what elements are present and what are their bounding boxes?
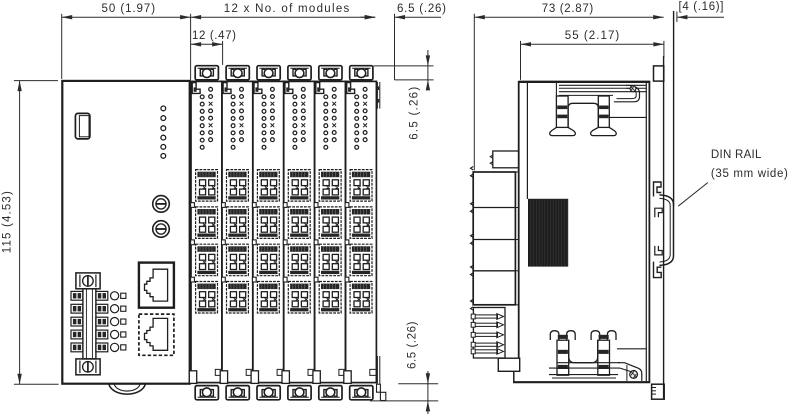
svg-text:[4 (.16)]: [4 (.16)] — [679, 1, 724, 13]
svg-text:50 (1.97): 50 (1.97) — [102, 3, 156, 15]
svg-text:6.5 (.26): 6.5 (.26) — [397, 3, 446, 15]
svg-text:115 (4.53): 115 (4.53) — [2, 191, 14, 253]
svg-text:55 (2.17): 55 (2.17) — [565, 30, 620, 42]
svg-text:6.5 (.26): 6.5 (.26) — [409, 87, 421, 140]
svg-text:12 (.47): 12 (.47) — [192, 30, 236, 42]
svg-text:(35 mm wide): (35 mm wide) — [711, 168, 788, 180]
svg-text:DIN RAIL: DIN RAIL — [711, 149, 762, 161]
svg-text:6.5 (.26): 6.5 (.26) — [406, 321, 418, 369]
svg-text:73 (2.87): 73 (2.87) — [542, 3, 594, 15]
